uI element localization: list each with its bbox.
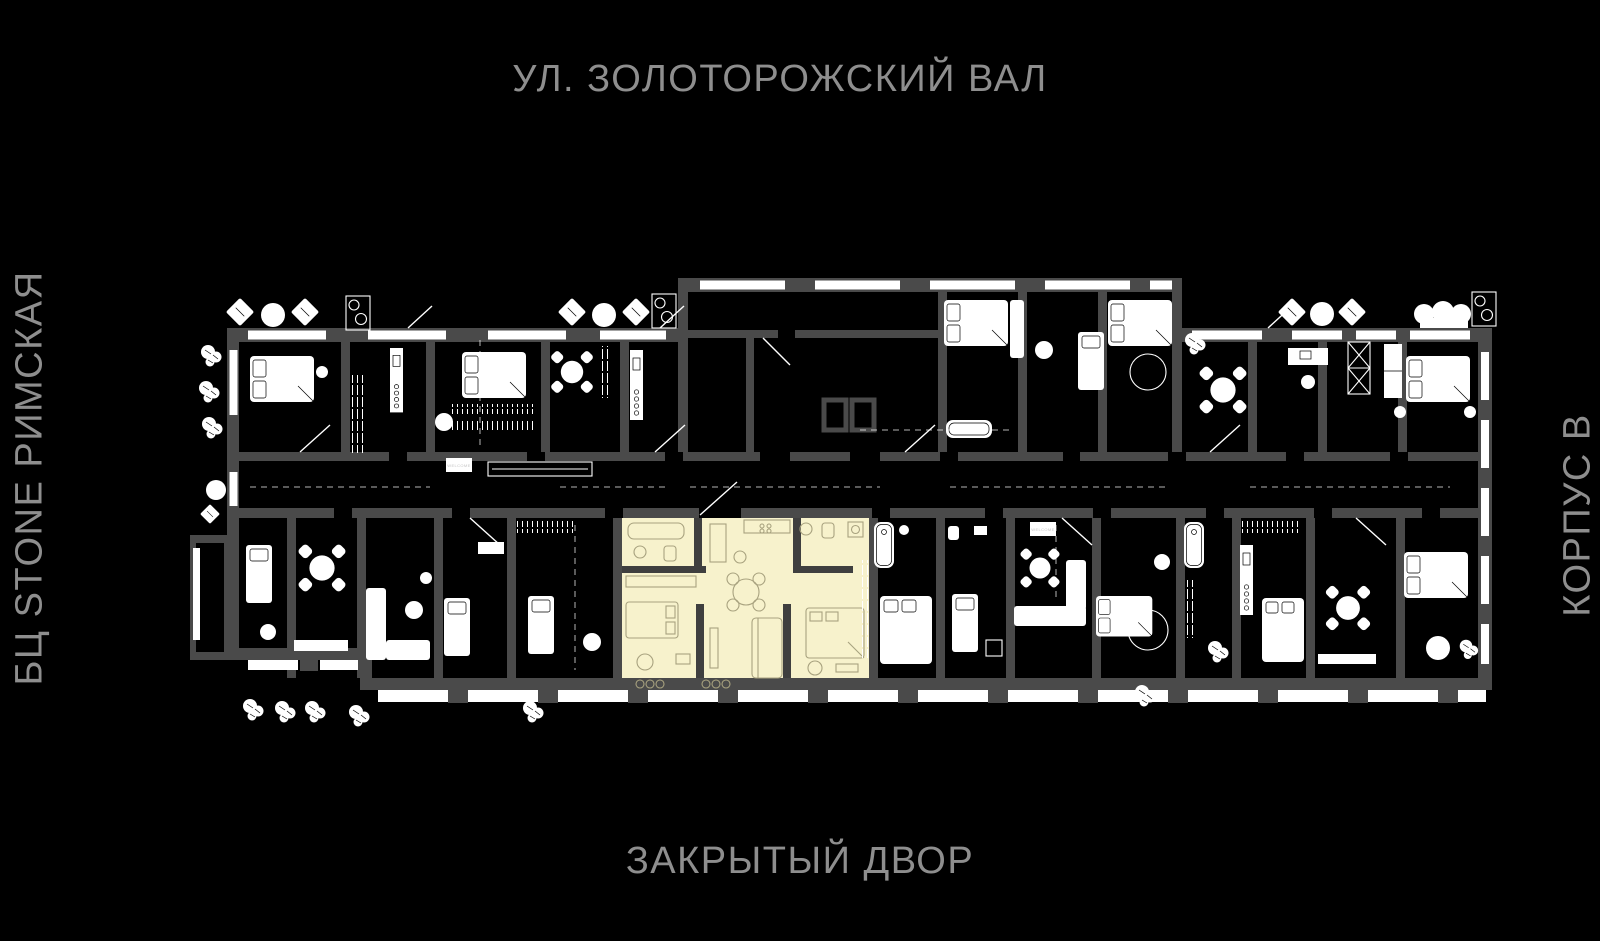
floor-plan: WELCOME WELCOME: [0, 0, 1600, 941]
floor-plan-page: УЛ. ЗОЛОТОРОЖСКИЙ ВАЛ ЗАКРЫТЫЙ ДВОР БЦ S…: [0, 0, 1600, 941]
doormat-label: WELCOME: [447, 463, 470, 468]
doormat-label: WELCOME: [1031, 527, 1054, 532]
selected-apartment[interactable]: [622, 518, 869, 688]
